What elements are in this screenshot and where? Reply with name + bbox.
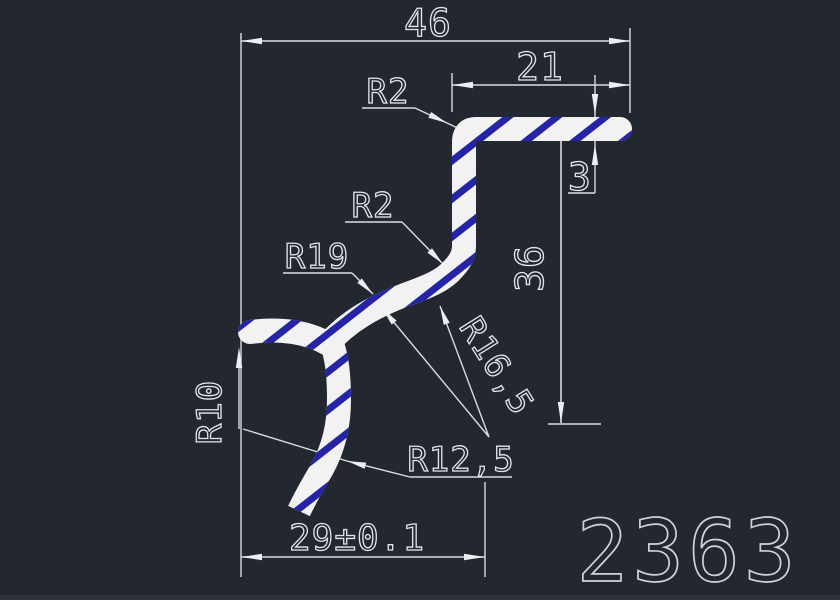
profile-outline [180,90,680,550]
bottom-edge-strip [0,595,840,600]
radius-r19-label: R19 [285,237,349,277]
section-hatch [180,90,680,550]
arrowhead [241,38,262,44]
arrowhead [609,38,630,44]
cad-viewport: 46 21 3 36 29±0.1 R2 R2 R19 R16,5 R12,5 … [0,0,840,600]
radius-r12-label: R12,5 [407,440,514,480]
radius-r10-label: R10 [190,380,230,444]
dim-bottom-width-label: 29±0.1 [289,518,425,559]
arrowhead [452,82,473,88]
dim-upper-width-label: 21 [516,45,564,89]
arrowhead [241,554,262,560]
dim-overall-width-label: 46 [404,1,452,45]
profile-drawing: 46 21 3 36 29±0.1 R2 R2 R19 R16,5 R12,5 … [0,0,840,600]
dim-flange-thickness-label: 3 [568,155,592,199]
part-number: 2363 [576,502,799,600]
arrowhead [609,82,630,88]
radius-r2-top-label: R2 [367,72,410,112]
radius-r2-mid-label: R2 [352,186,395,226]
arrowhead [464,554,485,560]
dim-right-height-label: 36 [508,244,552,292]
